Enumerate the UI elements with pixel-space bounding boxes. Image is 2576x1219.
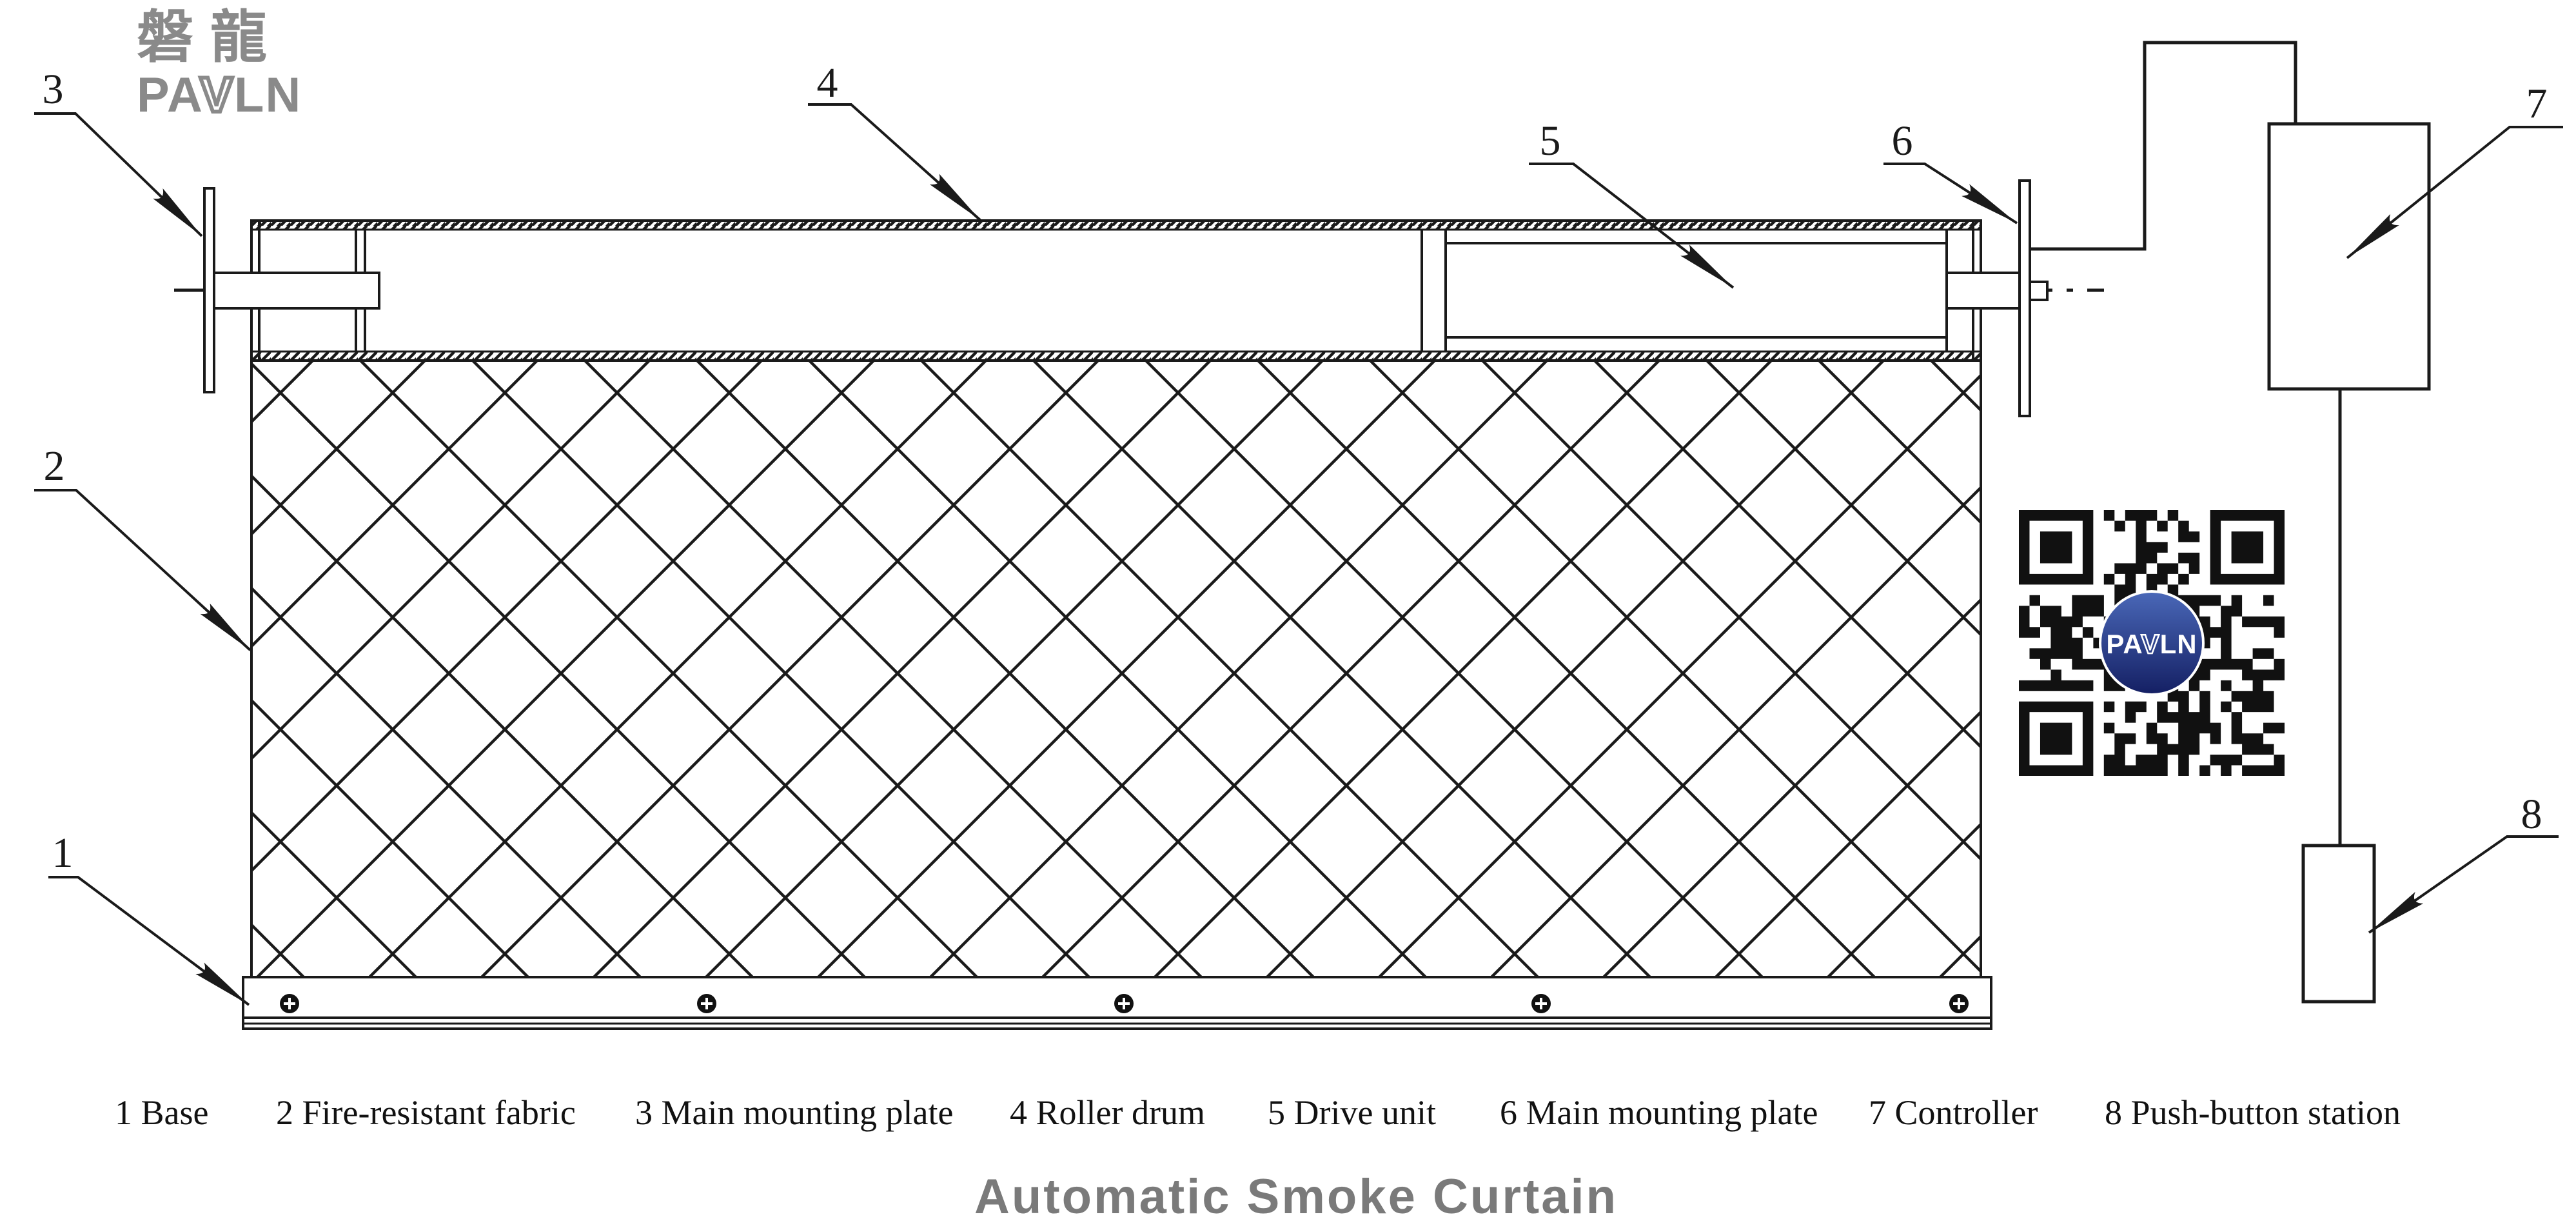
legend-item-base: 1 Base [115,1093,208,1133]
svg-text:7: 7 [2526,80,2548,127]
left-shaft [214,273,379,308]
right-shaft [1947,273,2020,308]
callout-8-push-button: 8 [2369,791,2559,933]
fire-resistant-fabric [251,361,1981,977]
wire-drum-to-controller [2030,43,2296,249]
svg-text:1: 1 [52,829,74,877]
legend-item-right-plate: 6 Main mounting plate [1500,1093,1818,1133]
callout-1-base: 1 [48,829,249,1005]
svg-text:2: 2 [44,442,65,490]
callout-4-roller-drum: 4 [808,59,980,220]
legend-item-drive-unit: 5 Drive unit [1268,1093,1436,1133]
legend-item-push-button: 8 Push-button station [2105,1093,2401,1133]
legend-item-left-plate: 3 Main mounting plate [635,1093,953,1133]
page-title: Automatic Smoke Curtain [974,1169,1618,1219]
main-mounting-plate-left [204,188,214,392]
drive-unit [1422,230,1947,352]
svg-text:3: 3 [43,66,64,113]
callout-2-fabric: 2 [34,442,250,650]
legend-item-roller-drum: 4 Roller drum [1010,1093,1205,1133]
legend-item-controller: 7 Controller [1869,1093,2038,1133]
svg-text:5: 5 [1540,117,1561,164]
callout-3-left-plate: 3 [34,66,202,236]
smoke-curtain-diagram: 磐龍 PAVLN [0,0,2576,1219]
parts-legend: 1 Base 2 Fire-resistant fabric 3 Main mo… [0,1093,2576,1131]
qr-center-badge-label: PAVLN [2106,629,2197,659]
legend-item-fabric: 2 Fire-resistant fabric [276,1093,576,1133]
technical-drawing: PAVLN 1 2 3 4 5 6 [0,0,2576,1219]
svg-text:6: 6 [1892,117,1913,164]
push-button-station-box [2303,846,2374,1002]
qr-code-icon: PAVLN [2019,510,2285,776]
svg-text:4: 4 [817,59,838,106]
svg-text:8: 8 [2521,791,2542,838]
main-mounting-plate-right [2020,181,2030,416]
right-shaft-stub [2030,282,2047,300]
callout-6-right-plate: 6 [1883,117,2017,223]
